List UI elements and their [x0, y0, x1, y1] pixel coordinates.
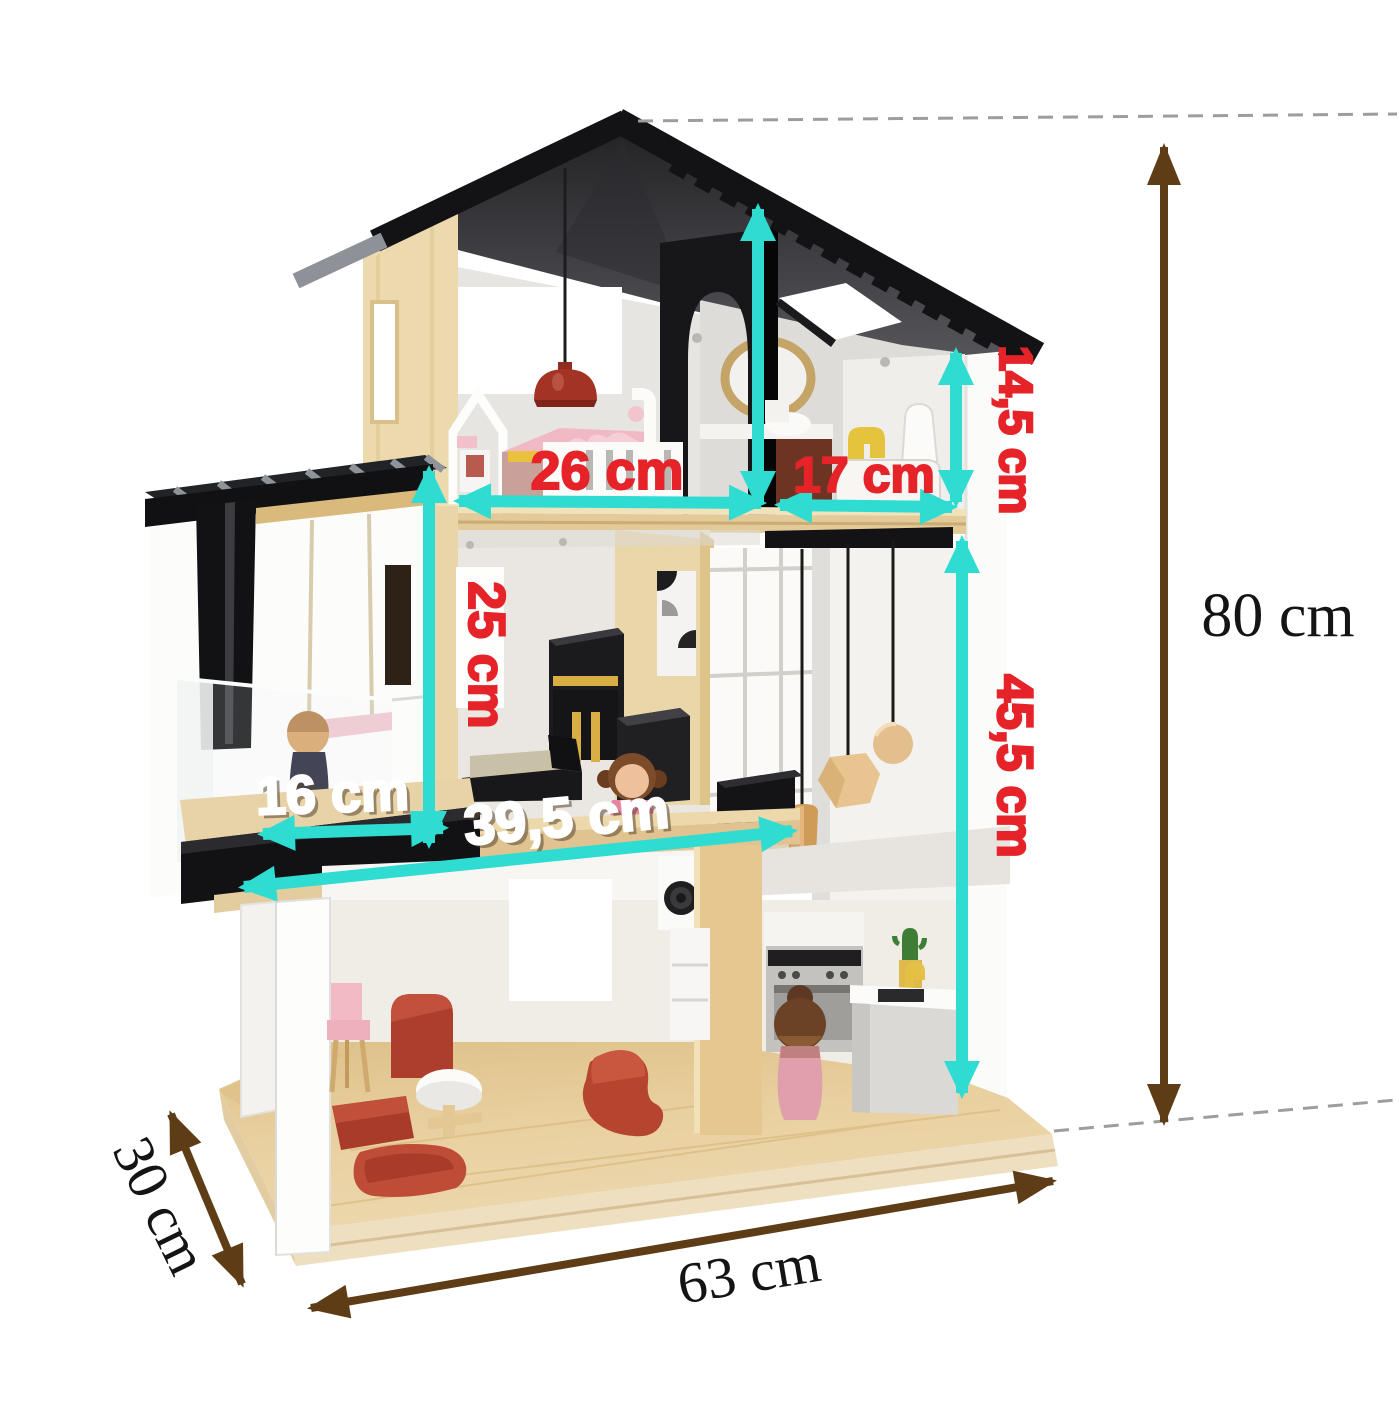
svg-text:14,5 cm: 14,5 cm — [990, 346, 1042, 515]
svg-text:16 cm: 16 cm — [255, 761, 410, 826]
svg-text:25 cm: 25 cm — [457, 581, 515, 728]
svg-text:17 cm: 17 cm — [793, 447, 935, 503]
svg-text:80 cm: 80 cm — [1201, 582, 1354, 650]
svg-text:45,5 cm: 45,5 cm — [987, 674, 1043, 857]
svg-text:26 cm: 26 cm — [530, 441, 683, 501]
